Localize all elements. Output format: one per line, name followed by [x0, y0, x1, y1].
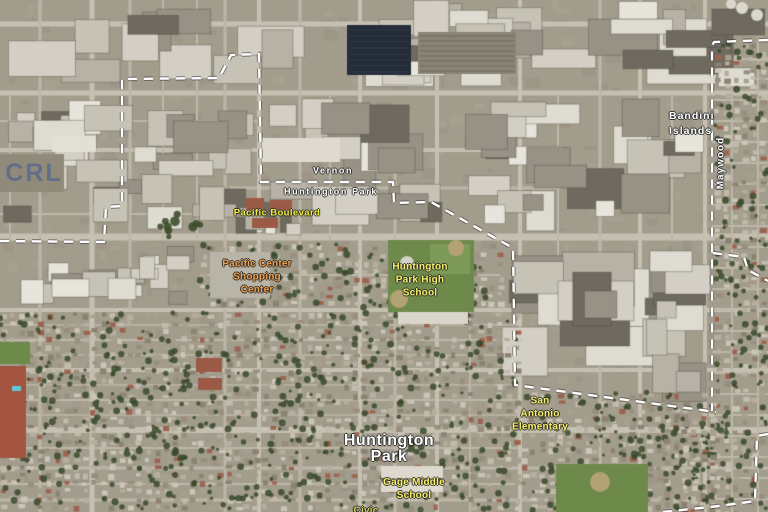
satellite-imagery: [0, 0, 768, 512]
crl-rooftop-text: CRL: [5, 156, 63, 190]
satellite-map[interactable]: CRL Vernon Huntington Park Pacific Boule…: [0, 0, 768, 512]
